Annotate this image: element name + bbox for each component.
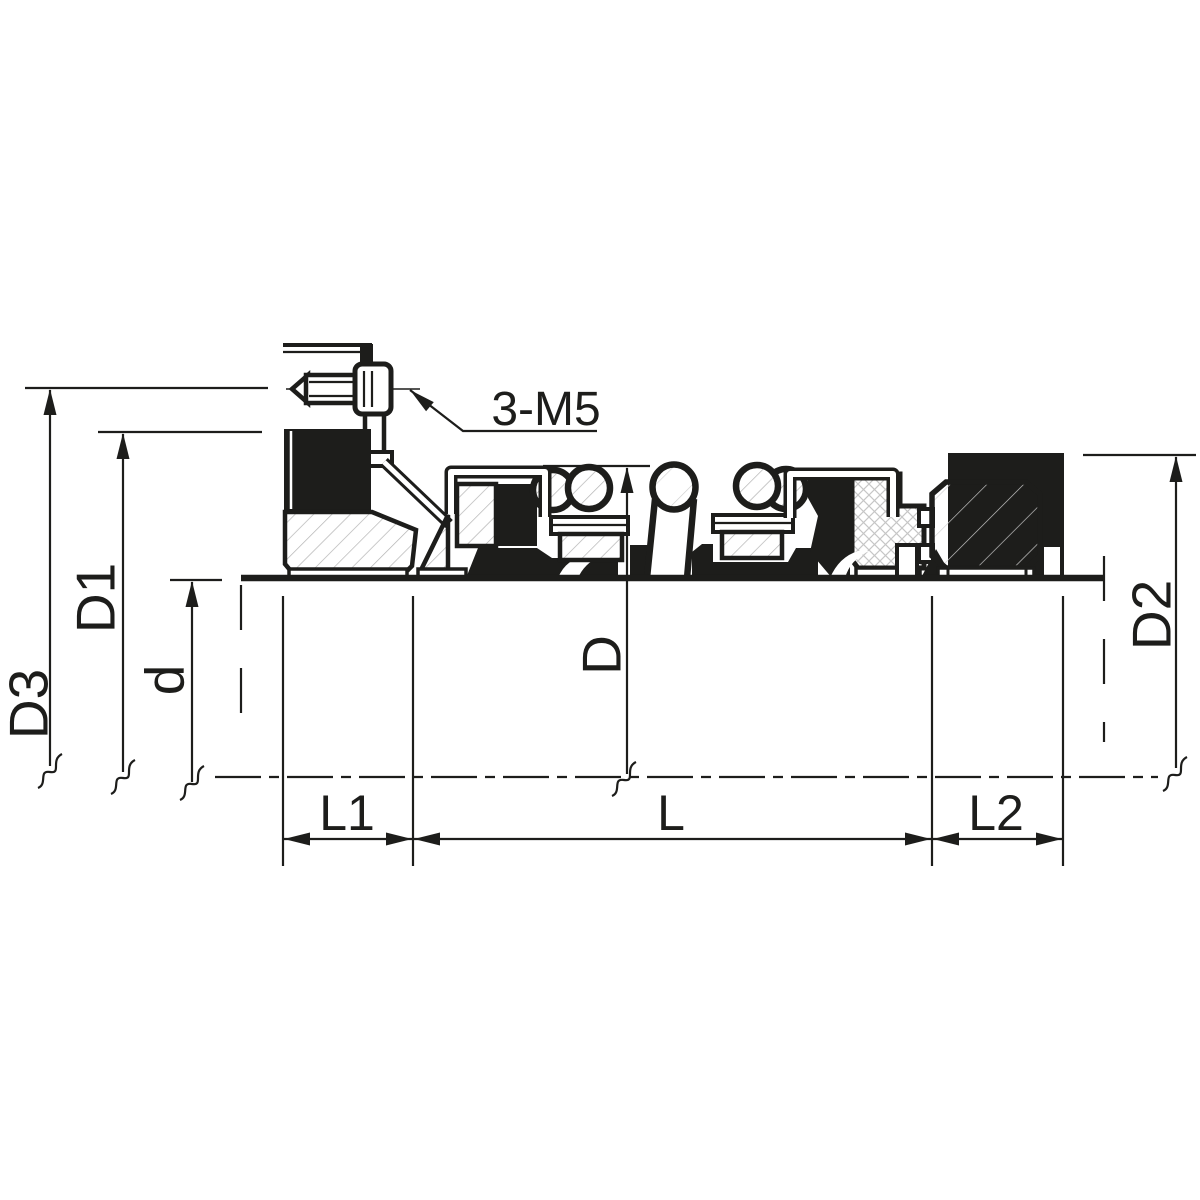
drawing-page: D3 D1 d D D2 L1 L L2 3-M5 — [0, 0, 1200, 1200]
spring-coil — [736, 465, 778, 507]
seat-ring — [932, 482, 1040, 568]
label-L: L — [657, 785, 685, 841]
label-screw-callout: 3-M5 — [491, 383, 600, 436]
seal-assembly — [283, 344, 1064, 578]
collar-section — [285, 512, 416, 570]
collar-body — [284, 429, 371, 511]
drive-wedge — [421, 515, 448, 570]
spring-unit-left — [451, 467, 650, 578]
set-screw-body — [306, 375, 357, 403]
label-D2: D2 — [1120, 580, 1182, 650]
stationary-seat — [919, 453, 1064, 578]
label-L1: L1 — [319, 785, 375, 841]
spring-unit-right — [692, 465, 818, 578]
labels: D3 D1 d D D2 L1 L L2 3-M5 — [0, 383, 1182, 841]
spring-coil-tilted — [647, 465, 696, 579]
label-L2: L2 — [968, 785, 1024, 841]
label-D1: D1 — [64, 563, 126, 633]
seal-cross-section-drawing: D3 D1 d D D2 L1 L L2 3-M5 — [0, 0, 1200, 1200]
label-d: d — [133, 665, 195, 696]
label-D: D — [570, 635, 632, 675]
dimension-D3 — [25, 388, 268, 788]
label-D3: D3 — [0, 669, 59, 739]
set-screw — [286, 364, 420, 414]
spring-coil — [568, 467, 610, 509]
